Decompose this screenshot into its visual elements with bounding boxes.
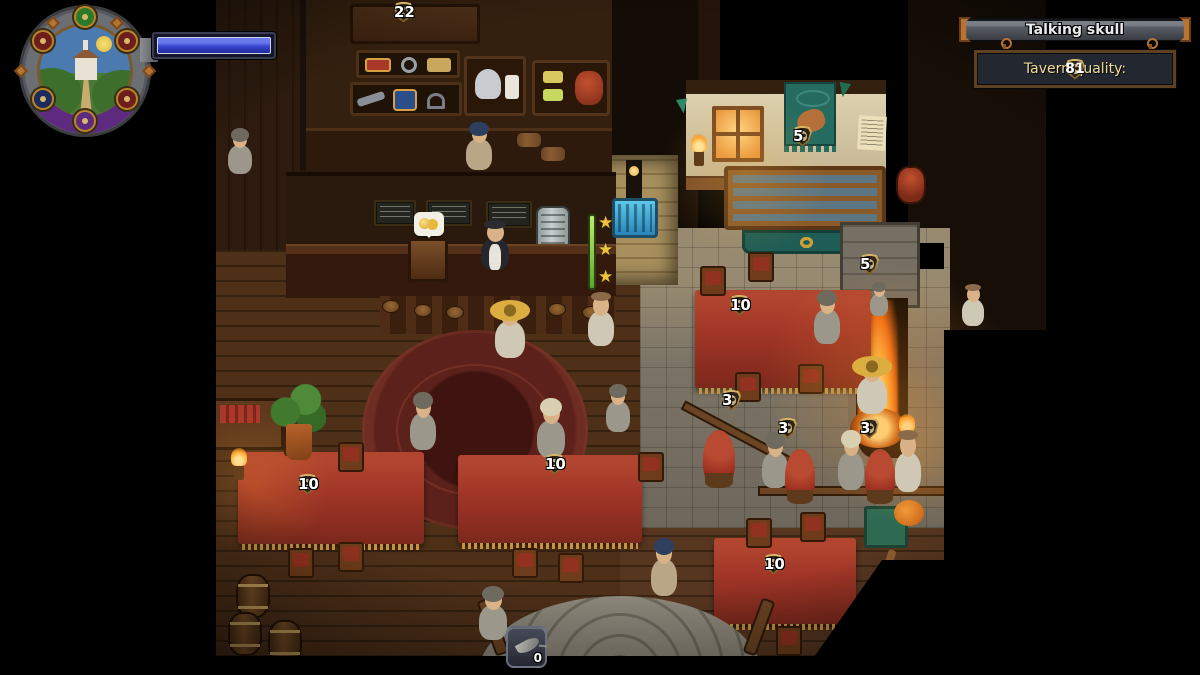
quality-value: 3 bbox=[778, 419, 788, 437]
sigil-medallion-icon bbox=[116, 88, 138, 110]
npc-strawhat[interactable] bbox=[492, 300, 528, 358]
energy-bar bbox=[152, 32, 276, 59]
npc-headscarf[interactable] bbox=[534, 398, 568, 458]
bracket-cap-icon bbox=[1179, 17, 1191, 42]
quality-value: 5 bbox=[860, 255, 870, 273]
quality-value: 3 bbox=[722, 391, 732, 409]
quality-value: 10 bbox=[764, 555, 785, 573]
item-count: 0 bbox=[534, 651, 542, 665]
npc-grey[interactable] bbox=[868, 282, 890, 316]
jug-medallion-icon bbox=[32, 30, 54, 52]
quality-value: 10 bbox=[298, 475, 319, 493]
npc-bluehood[interactable] bbox=[648, 538, 680, 596]
quality-value: 22 bbox=[394, 3, 415, 21]
hotbar-slot-4[interactable]: 0 bbox=[506, 626, 547, 668]
tavern-quality-panel: Tavern quality: 81 bbox=[974, 50, 1176, 88]
npc-white[interactable] bbox=[892, 430, 924, 492]
water-medallion-icon bbox=[32, 88, 54, 110]
quality-value: 3 bbox=[860, 419, 870, 437]
quality-value: 5 bbox=[793, 127, 803, 145]
tavern-quality-value: 81 bbox=[1065, 61, 1084, 77]
npc-redhood[interactable] bbox=[700, 426, 738, 488]
npc-grey[interactable] bbox=[408, 392, 438, 450]
energy-bar-fill bbox=[157, 37, 271, 54]
quality-value: 10 bbox=[545, 455, 566, 473]
npc-white[interactable] bbox=[960, 284, 986, 326]
npc-grey[interactable] bbox=[476, 586, 510, 640]
quality-value: 10 bbox=[730, 296, 751, 314]
game-screen: ★★★ bbox=[0, 0, 1200, 675]
location-title: Talking skull bbox=[1026, 22, 1124, 38]
npc-redhood[interactable] bbox=[782, 446, 818, 504]
npc-grey[interactable] bbox=[226, 128, 254, 174]
npc-bluehood[interactable] bbox=[464, 122, 494, 170]
time-wheel[interactable] bbox=[22, 8, 148, 134]
key-medallion-icon bbox=[116, 30, 138, 52]
npc-suit[interactable] bbox=[478, 220, 512, 270]
npc-grey[interactable] bbox=[604, 384, 632, 432]
npc-white[interactable] bbox=[585, 292, 617, 346]
npc-grey[interactable] bbox=[812, 290, 842, 344]
gear-medallion-icon bbox=[74, 110, 96, 132]
cross-medallion-icon bbox=[74, 6, 96, 28]
npc-strawhat[interactable] bbox=[854, 356, 890, 414]
bracket-cap-icon bbox=[959, 17, 971, 42]
